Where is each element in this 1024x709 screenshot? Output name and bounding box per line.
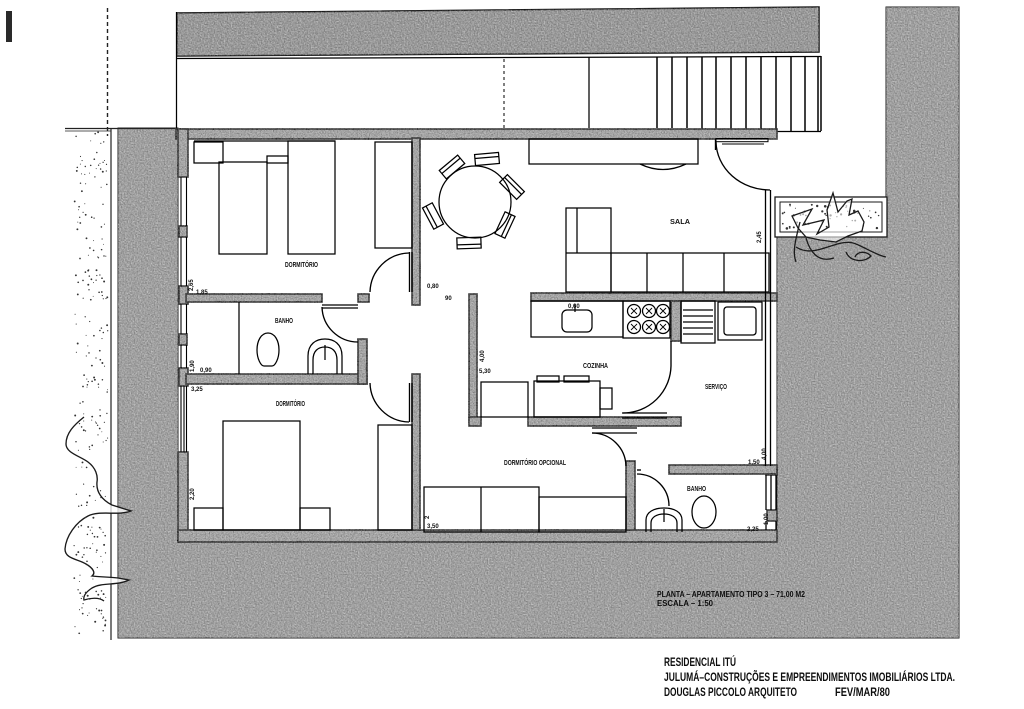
svg-text:1,00: 1,00 (764, 513, 770, 525)
svg-text:COZINHA: COZINHA (583, 363, 608, 370)
svg-text:2: 2 (425, 515, 431, 519)
svg-text:0,60: 0,60 (568, 304, 580, 310)
svg-text:JULUMÁ–CONSTRUÇÕES E EMPREENDI: JULUMÁ–CONSTRUÇÕES E EMPREENDIMENTOS IMO… (664, 669, 955, 684)
svg-text:2,65: 2,65 (189, 279, 195, 291)
svg-text:3,50: 3,50 (427, 524, 439, 530)
svg-text:0,90: 0,90 (200, 368, 212, 374)
svg-text:2,20: 2,20 (190, 488, 196, 500)
svg-text:RESIDENCIAL ITÚ: RESIDENCIAL ITÚ (664, 654, 736, 669)
svg-text:90: 90 (445, 296, 452, 302)
svg-text:1,50: 1,50 (748, 460, 760, 466)
svg-text:5,30: 5,30 (479, 369, 491, 375)
svg-text:4,00: 4,00 (480, 350, 486, 362)
svg-text:PLANTA – APARTAMENTO TIPO 3 –: PLANTA – APARTAMENTO TIPO 3 – 71,00 M2 (657, 590, 805, 599)
svg-text:FEV/MAR/80: FEV/MAR/80 (835, 685, 890, 699)
svg-text:1,90: 1,90 (190, 360, 196, 372)
svg-text:BANHO: BANHO (275, 318, 293, 325)
svg-text:DORMITÓRIO: DORMITÓRIO (276, 399, 305, 408)
svg-text:1,85: 1,85 (196, 290, 208, 296)
svg-text:SERVIÇO: SERVIÇO (705, 384, 727, 391)
svg-text:4,00: 4,00 (762, 448, 768, 460)
svg-text:DOUGLAS PICCOLO ARQUITETO: DOUGLAS PICCOLO ARQUITETO (664, 685, 797, 699)
svg-text:BANHO: BANHO (687, 486, 706, 493)
svg-text:DORMITÓRIO OPCIONAL: DORMITÓRIO OPCIONAL (504, 458, 567, 467)
svg-text:ESCALA – 1:50: ESCALA – 1:50 (657, 599, 714, 608)
svg-text:3,25: 3,25 (191, 387, 203, 393)
svg-text:DORMITÓRIO: DORMITÓRIO (285, 260, 318, 269)
svg-text:SALA: SALA (670, 219, 690, 226)
svg-text:0,80: 0,80 (427, 284, 439, 290)
svg-text:2,45: 2,45 (757, 231, 763, 243)
svg-text:2,25: 2,25 (747, 527, 759, 533)
